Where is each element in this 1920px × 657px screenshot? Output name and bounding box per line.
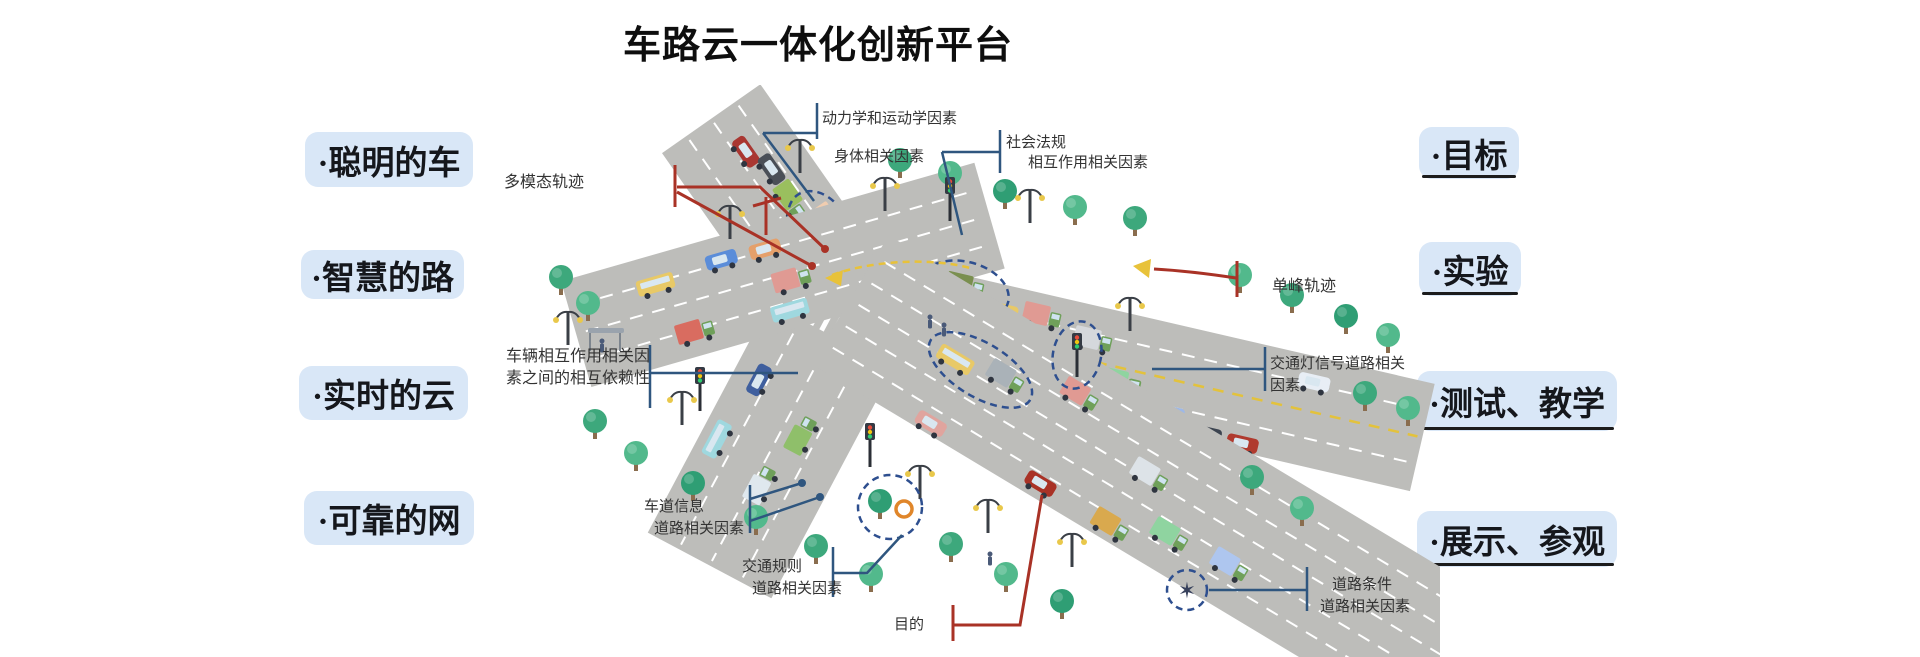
annotation-multimodal: 多模态轨迹 (504, 173, 584, 191)
label-text: ·展示、参观 (1429, 515, 1605, 563)
svg-text:✶: ✶ (1178, 578, 1196, 603)
annotation-signal-2: 因素 (1270, 377, 1300, 394)
annotation-interaction-1: 车辆相互作用相关因 (506, 347, 650, 365)
annotation-social-1: 社会法规 (1006, 134, 1066, 151)
label-text: ·测试、教学 (1429, 377, 1605, 425)
unimodal-trajectory-lines (1133, 259, 1237, 297)
annotation-traffic-rules-2: 道路相关因素 (752, 580, 842, 597)
annotation-body-factor: 身体相关因素 (834, 148, 924, 165)
annotation-lane-info-1: 车道信息 (644, 498, 704, 515)
annotation-traffic-rules-1: 交通规则 (742, 557, 802, 575)
label-text: ·实验 (1431, 245, 1508, 293)
label-test-teaching: ·测试、教学 (1417, 371, 1617, 431)
annotation-interaction-2: 素之间的相互依赖性 (506, 369, 650, 387)
annotation-social-2: 相互作用相关因素 (1028, 154, 1148, 171)
annotation-signal-1: 交通灯信号道路相关 (1270, 354, 1405, 372)
annotation-lane-info-2: 道路相关因素 (654, 520, 744, 537)
annotation-road-condition-1: 道路条件 (1332, 576, 1392, 593)
intersection-illustration: ✶ 动力学和运动 (430, 85, 1440, 657)
annotation-purpose: 目的 (894, 616, 924, 633)
label-display-visit: ·展示、参观 (1417, 511, 1617, 567)
page-title: 车路云一体化创新平台 (623, 14, 1013, 69)
annotation-unimodal: 单峰轨迹 (1272, 277, 1336, 295)
label-text: ·目标 (1430, 129, 1507, 177)
highlight-tree-sign (858, 475, 922, 539)
annotation-dynamics: 动力学和运动学因素 (822, 110, 957, 127)
annotation-road-condition-2: 道路相关因素 (1320, 598, 1410, 615)
